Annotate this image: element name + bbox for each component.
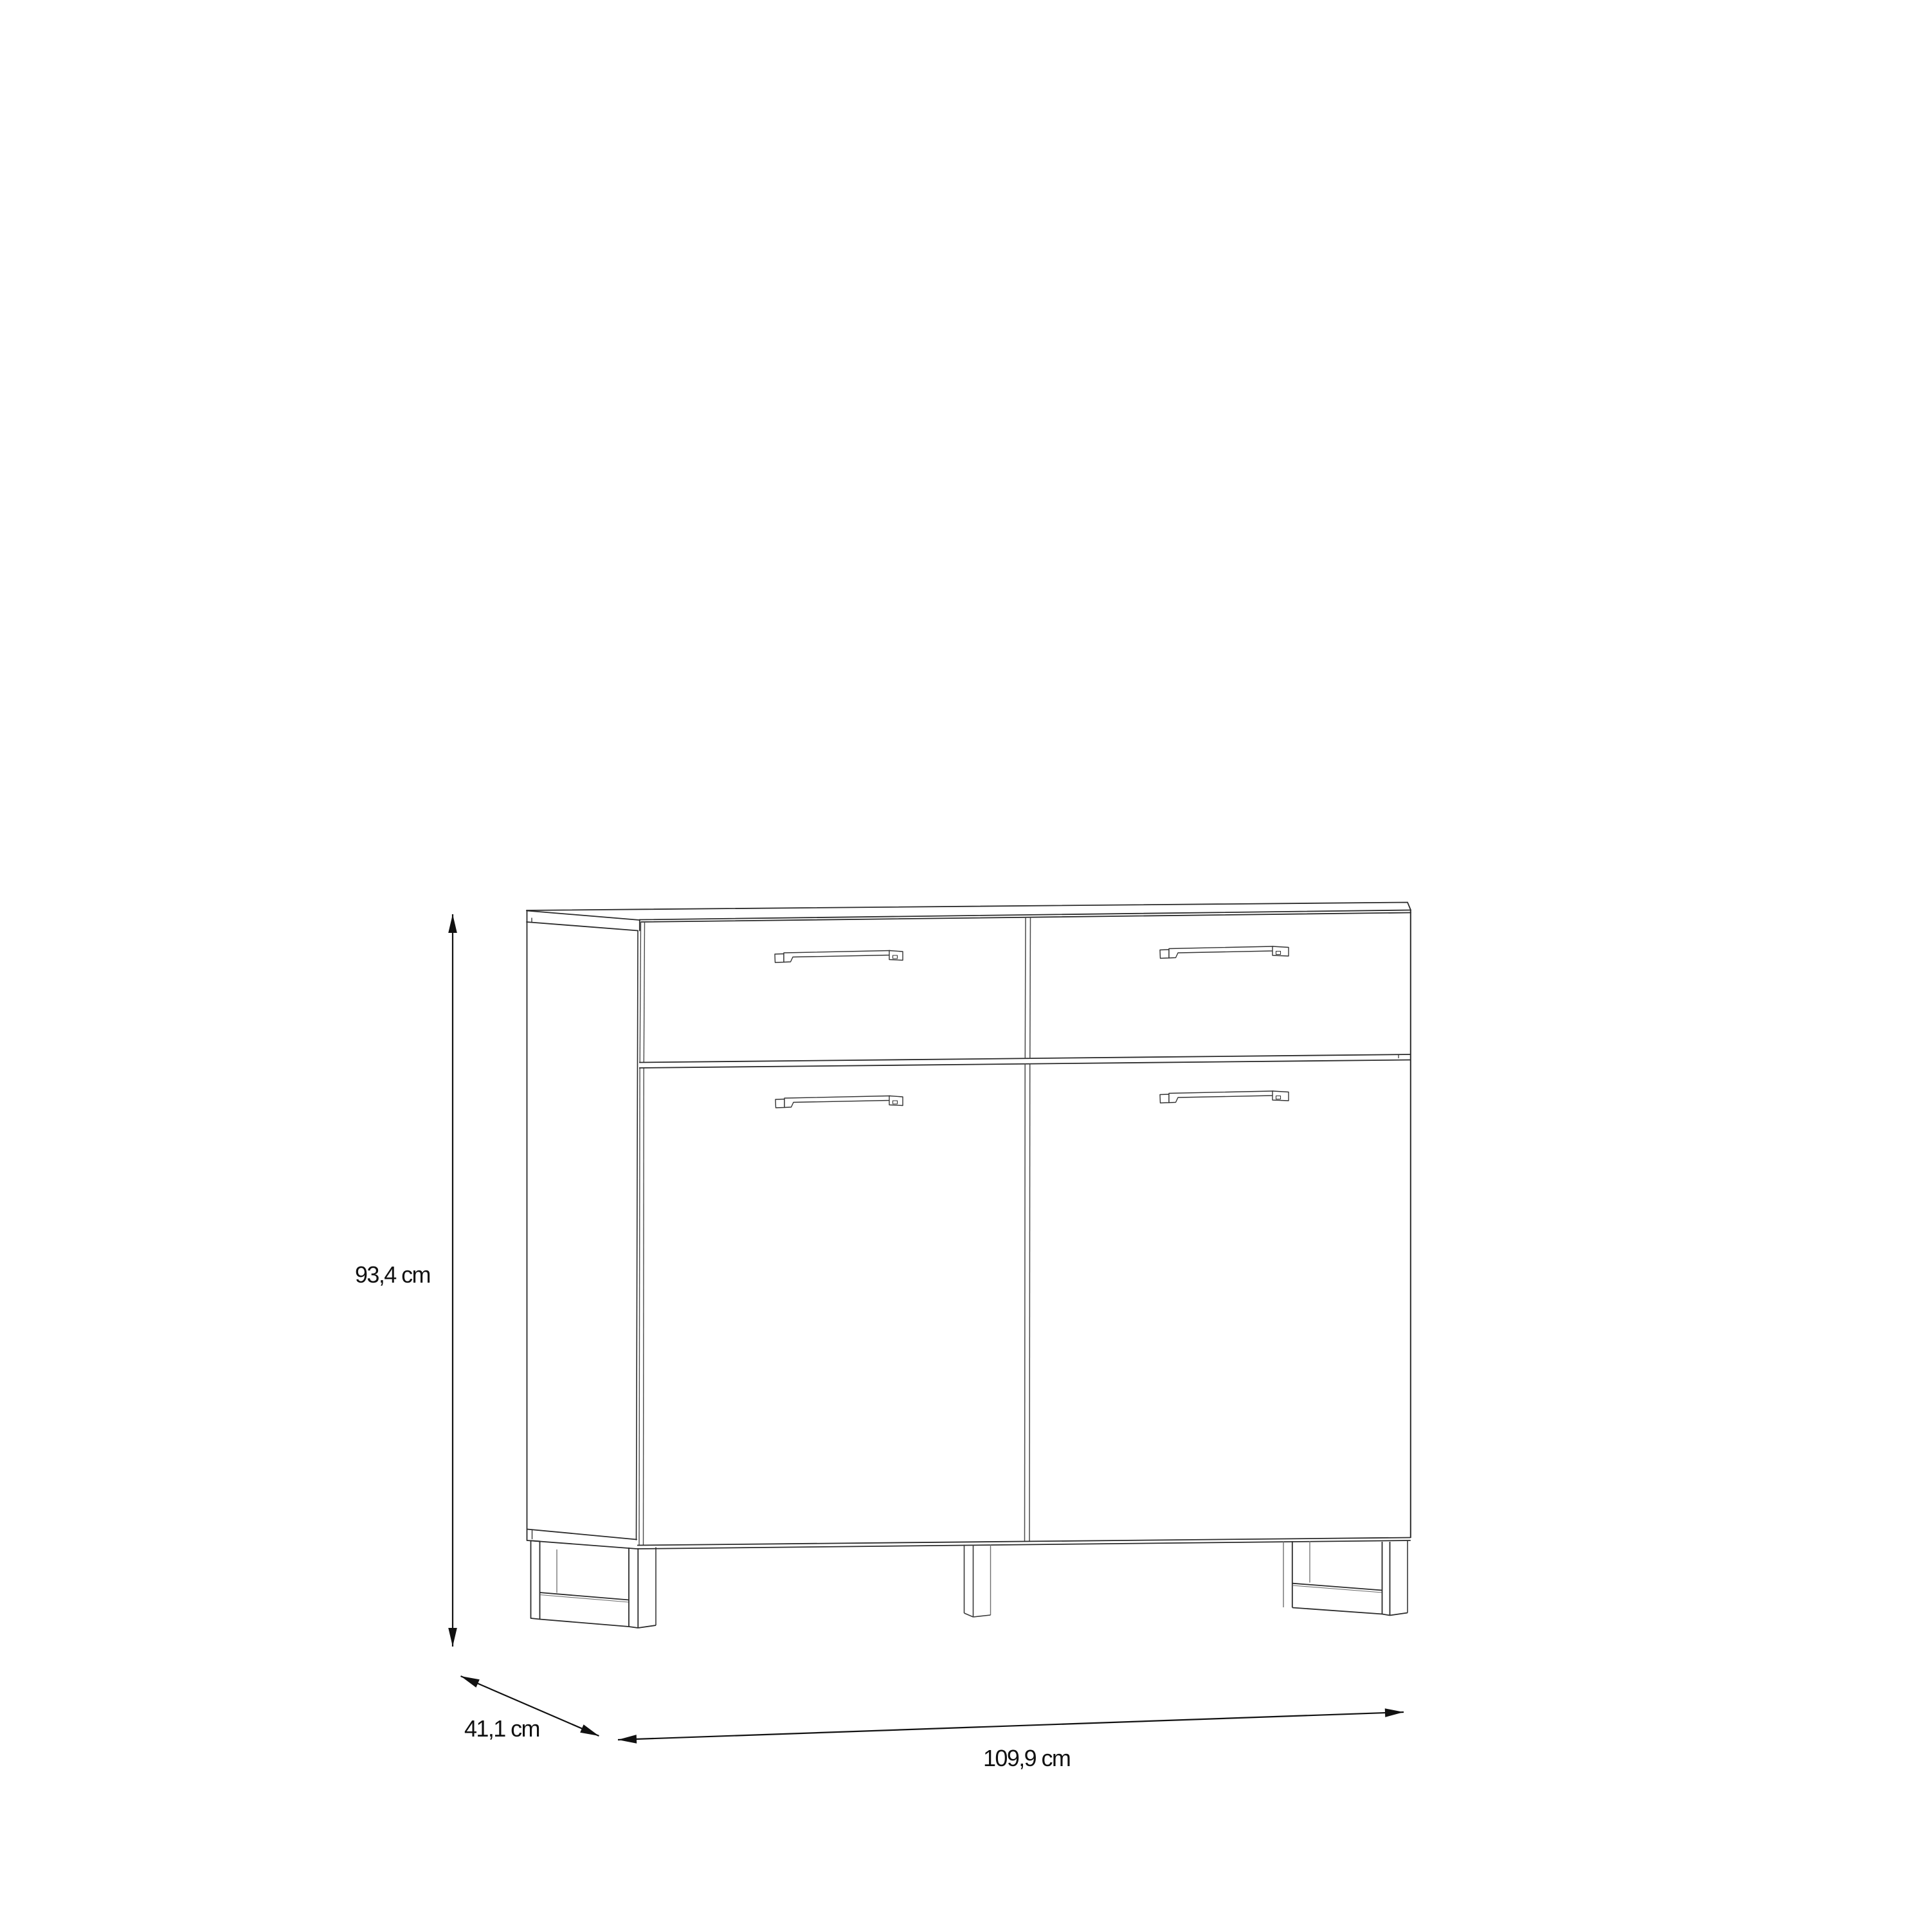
svg-text:109,9 cm: 109,9 cm: [983, 1745, 1070, 1771]
svg-text:41,1 cm: 41,1 cm: [464, 1715, 539, 1742]
svg-text:93,4 cm: 93,4 cm: [355, 1261, 430, 1288]
